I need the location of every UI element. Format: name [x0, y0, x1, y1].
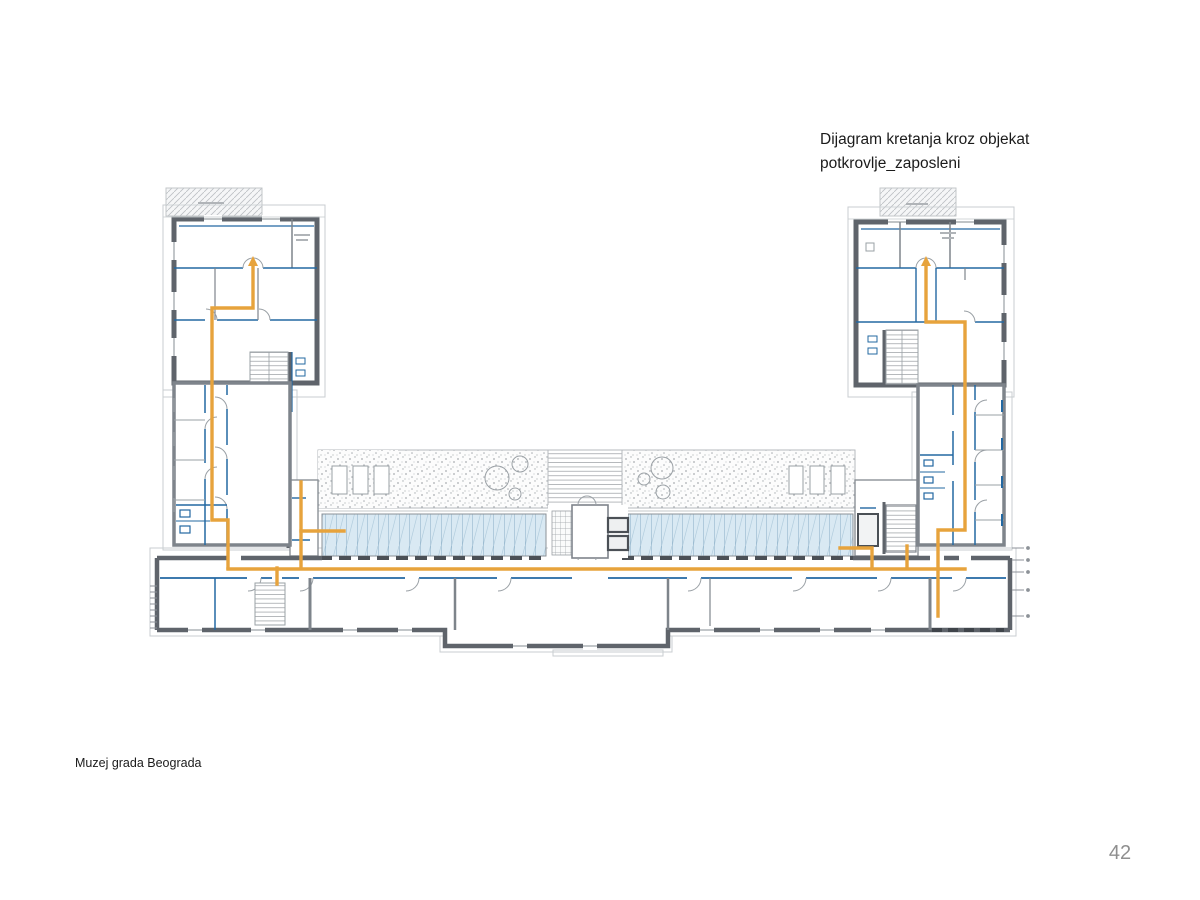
pergola-grid: [552, 511, 572, 555]
drawing-title-line2: potkrovlje_zaposleni: [820, 152, 1120, 176]
drawing-title: Dijagram kretanja kroz objekat potkrovlj…: [820, 128, 1120, 176]
glazed-skylight-strip-left: [322, 514, 546, 556]
page-number: 42: [1090, 842, 1150, 865]
stair-right-lower: [886, 505, 916, 552]
stair-bar-left: [255, 583, 285, 625]
central-core: [548, 496, 628, 567]
roof-hatch-right: [880, 188, 956, 216]
roof-deck-stairs: [548, 450, 622, 506]
elevator-right: [858, 514, 878, 546]
footer-caption: Muzej grada Beograda: [75, 756, 201, 770]
drawing-title-line1: Dijagram kretanja kroz objekat: [820, 128, 1120, 152]
portfolio-page: Dijagram kretanja kroz objekat potkrovlj…: [0, 0, 1200, 900]
route-arrowheads: [248, 256, 931, 266]
right-wing-lower-block: [918, 385, 1004, 545]
core-lobby: [572, 505, 608, 558]
dimension-ticks: [1012, 547, 1029, 618]
rooflight-rects-left: [332, 466, 389, 494]
glazed-skylight-strip-right: [628, 514, 853, 556]
right-wing-upper-block: [856, 222, 1004, 385]
courtyard-roof: [250, 450, 918, 567]
rooflight-rects-right: [789, 466, 845, 494]
